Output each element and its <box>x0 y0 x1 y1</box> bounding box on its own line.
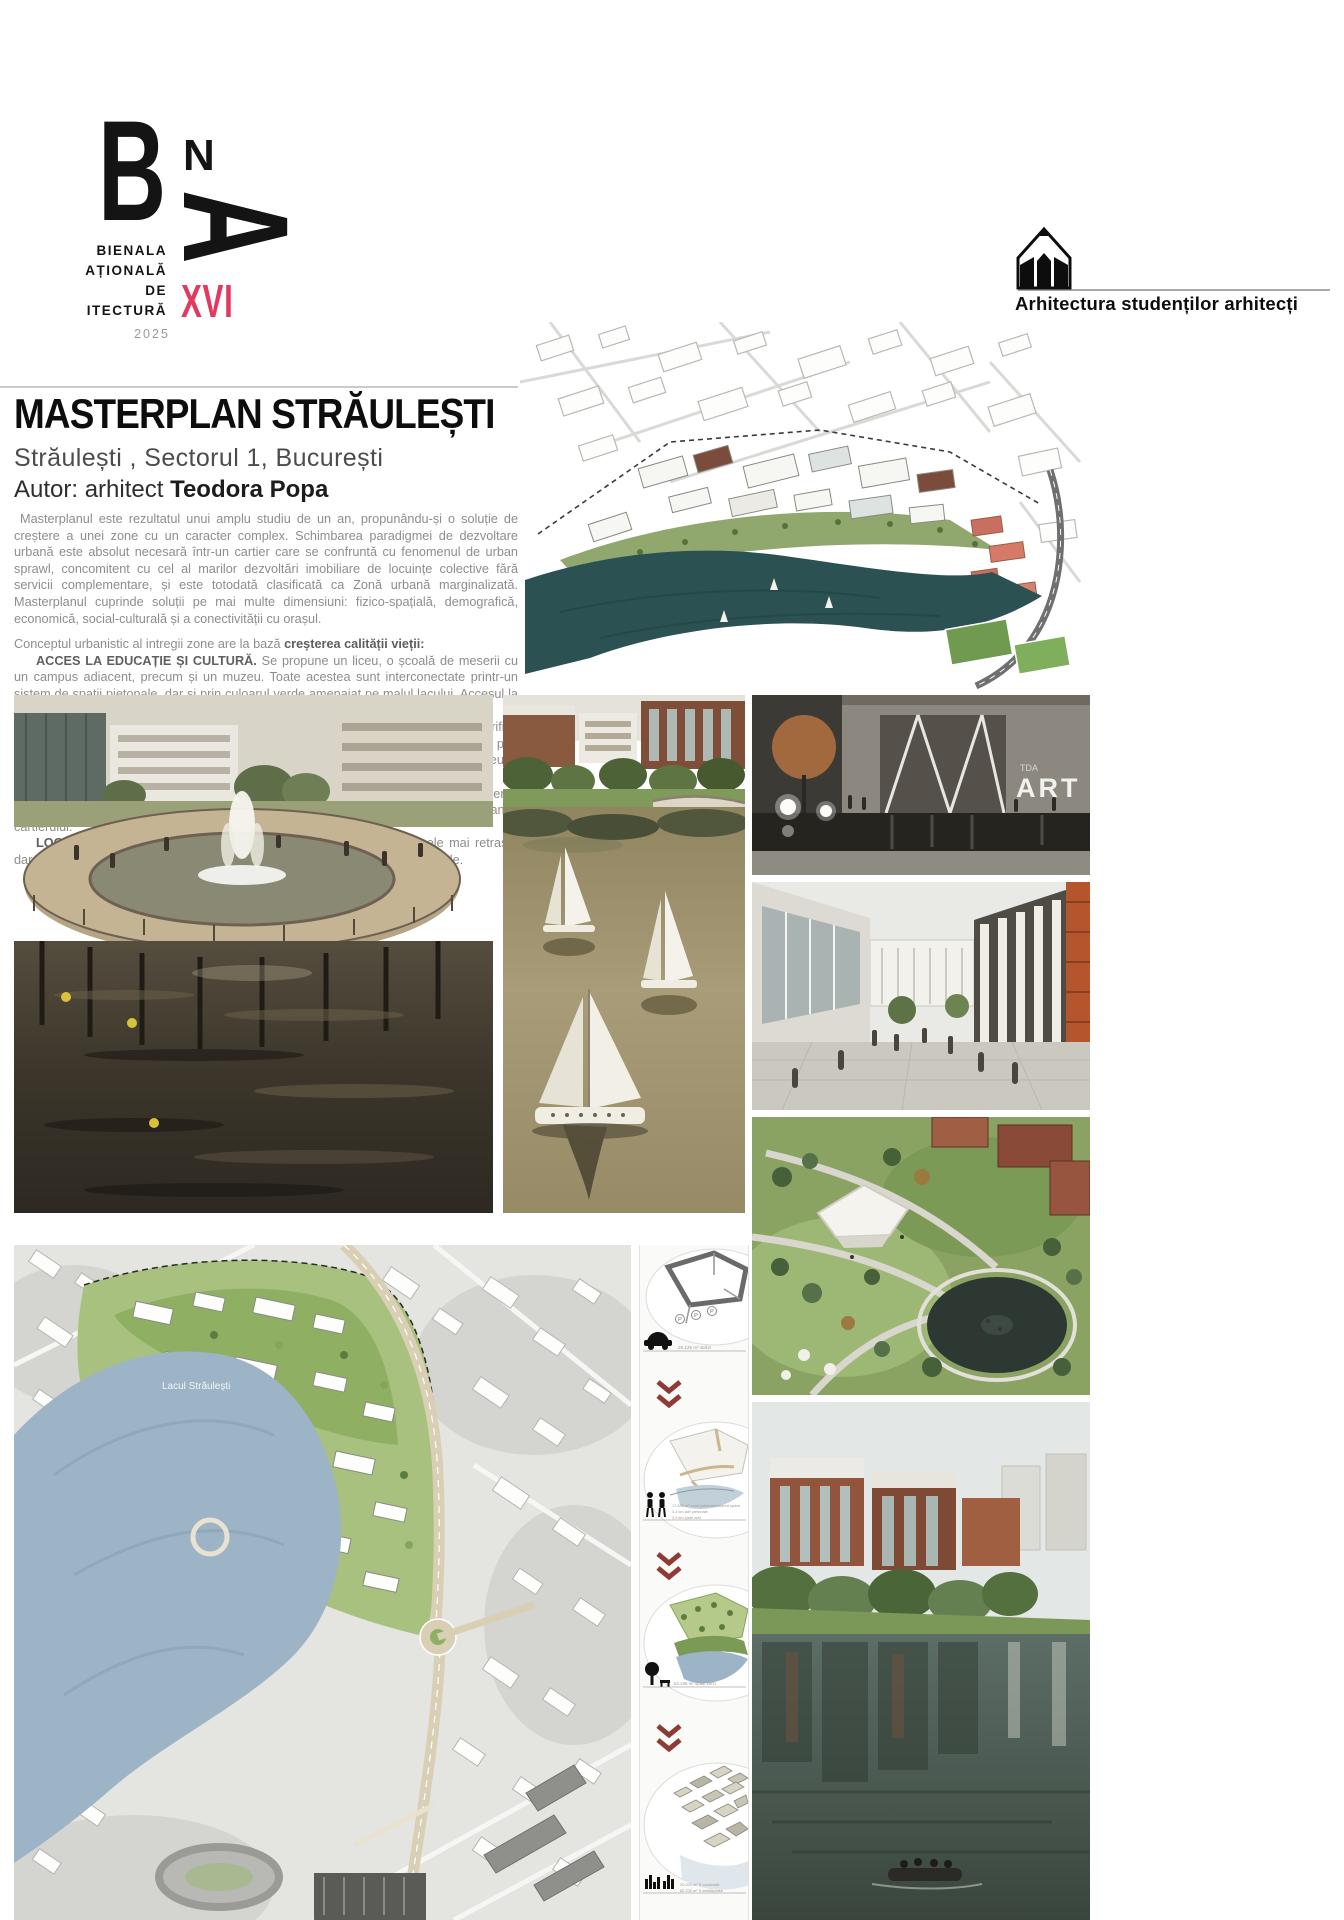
diagram3-caption: 62.196 m² spații verzi <box>674 1681 716 1686</box>
concept-paragraph: Conceptul urbanistic al intregii zone ar… <box>14 636 518 653</box>
svg-text:P: P <box>710 1309 714 1315</box>
bna-logo: B N A BIENALA NAȚIONALĂ DE ARHITECTURĂ X… <box>85 100 305 350</box>
waterfront-render <box>752 1402 1090 1920</box>
svg-text:P: P <box>678 1317 682 1323</box>
skyline-icon <box>645 1875 674 1889</box>
diagram-built: 20.000 m² S construită 82.200 m² S desfă… <box>643 1763 748 1893</box>
page-subtitle: Străulești , Sectorul 1, București <box>14 444 383 473</box>
courtyard-render <box>752 882 1090 1110</box>
concept-lead: Conceptul urbanistic al intregii zone ar… <box>14 637 284 651</box>
museum-art-label: ART <box>1016 773 1081 803</box>
author-name: Teodora Popa <box>170 476 328 503</box>
diagram2-caption-1: 17.646 m² zone pietonale/shared space <box>672 1503 740 1508</box>
diagram-pedestrian: 17.646 m² zone pietonale/shared space 3,… <box>643 1422 748 1538</box>
logo-line-1: BIENALA <box>97 243 168 258</box>
diagram4-caption-1: 20.000 m² S construită <box>680 1882 720 1887</box>
pencil-house-icon <box>1015 226 1073 290</box>
plaza-paving <box>752 1042 1090 1110</box>
logo-letter-n: N <box>183 131 215 180</box>
logo-line-3: DE <box>145 283 167 298</box>
concept-bold: creșterea calității vieții: <box>284 637 424 651</box>
title-rule <box>0 386 518 388</box>
program-label: Arhitectura studenților arhitecți <box>1015 293 1298 315</box>
pond <box>919 1270 1075 1380</box>
svg-text:P: P <box>694 1313 698 1319</box>
diagram-green: 62.196 m² spații verzi <box>643 1585 748 1701</box>
reflecting-pool <box>752 813 1090 851</box>
diagram-streets: P P P 25.126 m² străzi <box>643 1249 748 1351</box>
logo-letter-a: A <box>151 190 305 264</box>
author-line: Autor: arhitect Teodora Popa <box>14 476 328 504</box>
logo-year: 2025 <box>134 327 170 341</box>
phase-chevron-3 <box>654 1722 684 1756</box>
lake-sailboats-render <box>503 695 745 1213</box>
sports-track <box>159 1847 279 1907</box>
page-title: MASTERPLAN STRĂULEȘTI <box>14 390 494 438</box>
diagram2-caption-2: 3,4 km alei pietonale <box>672 1509 708 1514</box>
logo-line-2: NAȚIONALĂ <box>85 263 167 278</box>
car-icon <box>644 1332 672 1350</box>
poster-page: B N A BIENALA NAȚIONALĂ DE ARHITECTURĂ X… <box>0 0 1344 1920</box>
lake-label: Lacul Străulești <box>162 1381 230 1392</box>
aerial-masterplan-render <box>520 322 1090 690</box>
park-aerial-render <box>752 1117 1090 1395</box>
phase-chevron-1 <box>654 1378 684 1412</box>
diagram1-caption: 25.126 m² străzi <box>678 1345 711 1350</box>
diagram4-caption-2: 82.200 m² S desfășurată <box>680 1888 723 1893</box>
intro-paragraph: Masterplanul este rezultatul unui amplu … <box>14 511 518 627</box>
diagram2-caption-3: 2,9 km piste velo <box>672 1515 701 1520</box>
lake-water <box>503 807 745 1213</box>
museum-small-label: TDA <box>1020 763 1038 773</box>
lake-water <box>14 941 493 1213</box>
phase-chevron-2 <box>654 1550 684 1584</box>
autumn-tree <box>772 715 836 779</box>
logo-edition: XVI <box>181 276 233 327</box>
siteplan-drawing: Lacul Străulești <box>14 1245 631 1920</box>
fountain-plaza-render <box>14 695 493 1213</box>
art-museum-plaza-render: TDA ART <box>752 695 1090 875</box>
parking-lot <box>314 1873 426 1920</box>
paving <box>752 851 1090 875</box>
logo-line-4: ARHITECTURĂ <box>85 303 167 318</box>
author-prefix: Autor: arhitect <box>14 476 170 503</box>
